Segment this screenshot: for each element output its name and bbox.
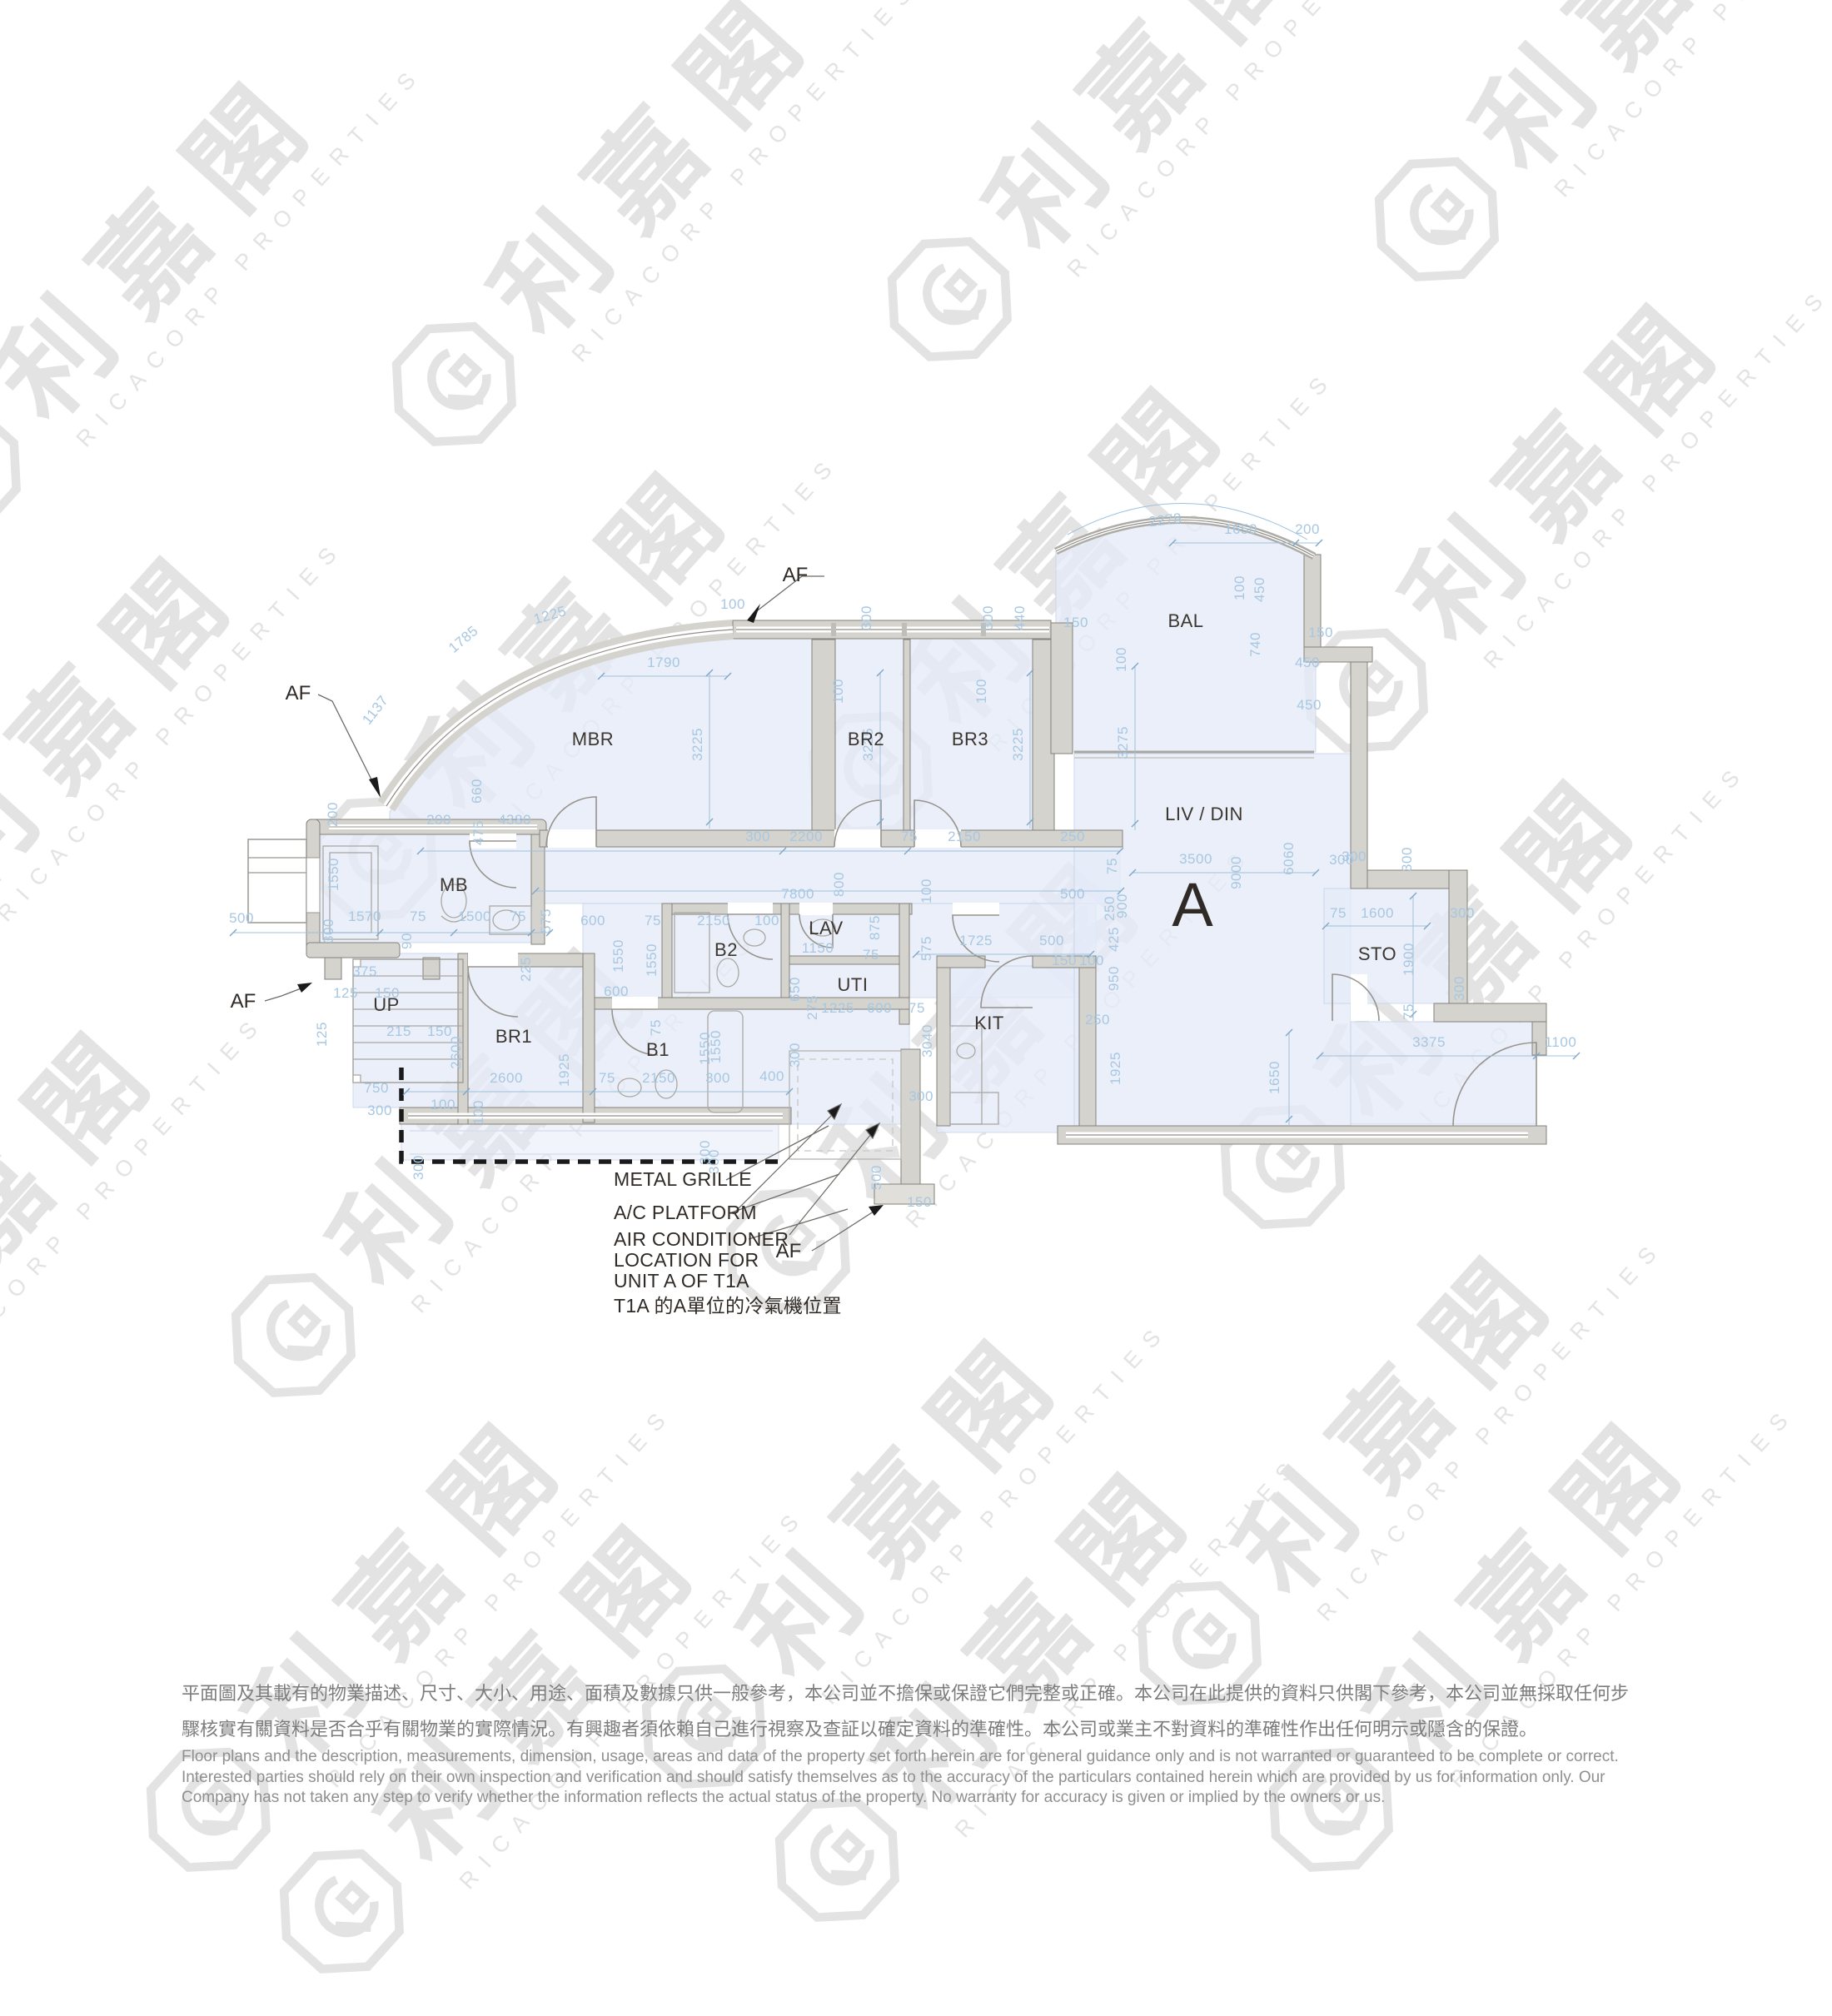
dimension-label: 225 (518, 957, 534, 982)
dimension-label: 575 (918, 936, 934, 961)
disclaimer: 平面圖及其載有的物業描述、尺寸、大小、用途、面積及數據只供一般參考，本公司並不擔… (182, 1675, 1757, 1809)
dimension-label: 2150 (642, 1070, 675, 1086)
dimension-label: 3225 (1010, 728, 1026, 761)
dimension-label: 6060 (1281, 842, 1297, 875)
dimension-label: 300 (745, 829, 770, 844)
room-label-br1: BR1 (495, 1026, 532, 1047)
room-label-bal: BAL (1167, 610, 1203, 631)
note-label: AIR CONDITIONER (614, 1228, 789, 1250)
dimension-label: 75 (1104, 858, 1120, 874)
dimension-label: 500 (229, 910, 254, 926)
dimension-label: 300 (1451, 976, 1467, 1001)
dimension-label: 100 (1232, 575, 1247, 600)
dimension-label: 100 (431, 1097, 456, 1113)
dimension-label: 250 (1085, 1012, 1110, 1028)
note-label: T1A 的A單位的冷氣機位置 (614, 1295, 842, 1317)
floor-hall (540, 847, 1120, 903)
room-label-livdin: LIV / DIN (1165, 804, 1243, 824)
disclaimer-zh-line1: 平面圖及其載有的物業描述、尺寸、大小、用途、面積及數據只供一般參考，本公司並不擔… (182, 1675, 1757, 1711)
dimension-label: 575 (538, 908, 554, 933)
floor-kit (937, 966, 1096, 1132)
dimension-label: 215 (386, 1023, 411, 1039)
room-label-b2: B2 (714, 939, 738, 960)
dimension-label: 300 (1342, 849, 1367, 864)
dimension-label: 100 (918, 879, 934, 903)
dimension-label: 1785 (446, 623, 481, 656)
dimension-label: 1570 (348, 908, 381, 924)
dimension-label: 750 (364, 1080, 389, 1096)
af-label: AF (783, 564, 809, 586)
dimension-label: 1925 (1108, 1052, 1123, 1085)
dimension-label: 475 (470, 820, 486, 845)
dimension-label: 300 (367, 1103, 392, 1118)
dimension-label: 500 (1060, 886, 1085, 902)
note-label: A/C PLATFORM (614, 1202, 757, 1223)
dimension-label: 1650 (1267, 1061, 1282, 1094)
dimension-label: 300 (787, 1043, 803, 1068)
dimension-label: 1500 (458, 908, 491, 924)
room-label-uti: UTI (838, 974, 869, 995)
dimension-label: 100 (830, 679, 846, 704)
dimension-label: 75 (1401, 1003, 1416, 1020)
dimension-label: 9000 (1228, 856, 1244, 889)
dimension-label: 300 (909, 1088, 933, 1104)
dimension-label: 150 (1308, 625, 1333, 640)
dimension-label: 1925 (556, 1053, 572, 1087)
dimension-label: 250 (1060, 829, 1085, 844)
dimension-label: 300 (411, 1155, 426, 1180)
room-label-mbr: MBR (572, 729, 614, 749)
note-label: UNIT A OF T1A (614, 1270, 749, 1292)
dimension-label: 875 (867, 915, 883, 940)
dimension-label: 2600 (490, 1070, 523, 1086)
dimension-label: 3500 (1179, 851, 1212, 867)
dimension-label: 75 (510, 908, 526, 924)
dimension-label: 200 (426, 812, 451, 828)
dimension-label: 90 (399, 933, 415, 949)
dimension-label: 3275 (1115, 726, 1131, 759)
dimension-label: 100 (973, 679, 989, 704)
dimension-label: 75 (645, 913, 661, 928)
note-label: LOCATION FOR (614, 1249, 759, 1271)
dimension-label: 100 (1113, 647, 1129, 672)
dimension-label: 300 (859, 605, 874, 630)
dimension-label: 450 (1252, 577, 1267, 602)
dimension-label: 1900 (1401, 943, 1416, 976)
dimension-label: 1550 (326, 858, 341, 891)
dimension-label: 3375 (1412, 1034, 1446, 1050)
af-label: AF (231, 990, 256, 1013)
dimension-label: 150 (907, 1194, 932, 1210)
dimension-label: 3040 (919, 1024, 935, 1058)
dimension-label: 400 (759, 1068, 784, 1084)
dimension-label: 375 (352, 963, 377, 979)
dimension-label: 1150 (802, 940, 834, 956)
dimension-label: 600 (867, 1000, 892, 1016)
dimension-label: 4380 (498, 812, 531, 828)
dimension-label: 650 (787, 977, 803, 1002)
note-label: METAL GRILLE (614, 1168, 752, 1190)
dimension-label: 200 (325, 802, 341, 827)
room-label-sto: STO (1358, 943, 1396, 964)
dimension-label: 600 (580, 913, 605, 928)
dimension-label: 2150 (697, 913, 730, 928)
dimension-label: 7800 (781, 886, 814, 902)
dimension-label: 125 (314, 1022, 330, 1047)
floor-bal (1056, 518, 1316, 752)
dimension-label: 300 (1450, 905, 1475, 921)
dimension-label: 1225 (821, 1000, 854, 1016)
dimension-label: 1725 (959, 933, 993, 948)
dimension-label: 1790 (647, 655, 680, 670)
dimension-label: 1137 (359, 693, 391, 728)
disclaimer-zh-line2: 驟核實有關資料是否合乎有關物業的實際情況。有興趣者須依賴自己進行視察及查証以確定… (182, 1711, 1757, 1747)
dimension-label: 100 (720, 596, 745, 612)
room-label-kit: KIT (974, 1013, 1004, 1033)
dimension-label: 300 (980, 605, 996, 630)
room-label-b1: B1 (646, 1039, 670, 1060)
dimension-label: 740 (1247, 632, 1263, 657)
dimension-label: 75 (1330, 905, 1347, 921)
dimension-label: 275 (804, 995, 820, 1020)
dimension-label: 2150 (948, 829, 981, 844)
dimension-label: 450 (1297, 697, 1322, 713)
dimension-label: 250 (1102, 896, 1118, 921)
room-label-lav: LAV (809, 918, 843, 938)
dimension-label: 2600 (448, 1036, 464, 1069)
dimension-label: 100 (1079, 953, 1104, 968)
dimension-label: 1550 (644, 943, 660, 977)
dimension-label: 950 (1106, 966, 1122, 991)
dimension-label: 150 (1063, 615, 1088, 630)
disclaimer-en-line1: Floor plans and the description, measure… (182, 1747, 1757, 1768)
dimension-label: 500 (869, 1165, 884, 1190)
room-label-up: UP (373, 994, 400, 1015)
dimension-label: 1550 (610, 939, 626, 973)
dimension-label: 300 (321, 918, 336, 943)
dimension-label: 2200 (789, 829, 823, 844)
dimension-label: 1650 (1224, 521, 1257, 537)
floor-b1 (583, 998, 909, 1124)
af-label: AF (286, 682, 311, 704)
room-label-mb: MB (440, 874, 468, 895)
room-label-a: A (1172, 870, 1213, 939)
dimension-label: 425 (1106, 927, 1122, 952)
dimension-label: 300 (705, 1070, 730, 1086)
dimension-label: 500 (1039, 933, 1064, 948)
dimension-label: 800 (831, 872, 847, 897)
dimension-label: 1225 (532, 603, 569, 627)
dimension-label: 150 (1052, 953, 1077, 968)
dimension-label: 100 (754, 913, 779, 928)
dimension-label: 75 (599, 1070, 615, 1086)
dimension-label: 200 (1295, 521, 1320, 537)
room-label-br3: BR3 (952, 729, 988, 749)
dimension-label: 3225 (689, 728, 705, 761)
dimension-label: 450 (1295, 655, 1320, 670)
dimension-label: 75 (909, 1000, 925, 1016)
dimension-label: 1100 (1545, 1034, 1577, 1050)
dimension-label: 1550 (708, 1030, 724, 1063)
floor-plan: 1137178512251003003004401502278100165020… (0, 0, 1832, 1832)
dimension-label: 1600 (1361, 905, 1394, 921)
dimension-label: 75 (863, 947, 879, 963)
dimension-label: 600 (604, 983, 629, 999)
dimension-label: 75 (410, 908, 426, 924)
dimension-label: 100 (470, 1100, 486, 1125)
dimension-label: 75 (901, 829, 918, 844)
room-label-br2: BR2 (848, 729, 884, 749)
disclaimer-en-line2: Interested parties should rely on their … (182, 1768, 1757, 1789)
disclaimer-en-line3: Company has not taken any step to verify… (182, 1788, 1757, 1809)
dimension-label: 75 (648, 1019, 664, 1036)
dimension-label: 440 (1012, 605, 1028, 630)
dimension-label: 300 (1399, 847, 1415, 872)
dimension-label: 125 (333, 985, 358, 1001)
dimension-label: 660 (469, 779, 485, 804)
